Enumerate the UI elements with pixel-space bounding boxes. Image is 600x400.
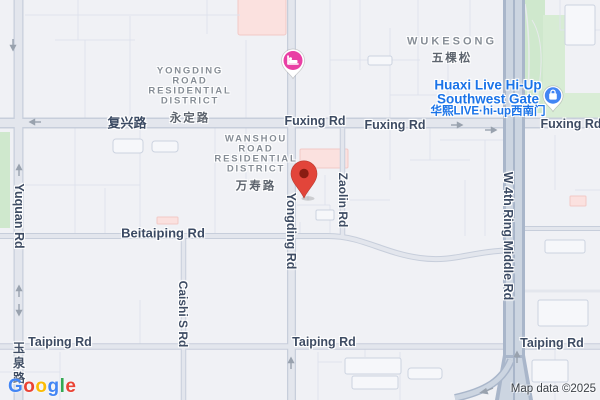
gate-pin[interactable] xyxy=(543,86,563,112)
pin-layer xyxy=(0,0,600,400)
hotel-pin[interactable] xyxy=(282,49,305,79)
map-canvas[interactable]: 复兴路 Fuxing Rd Fuxing Rd Fuxing Rd Beitai… xyxy=(0,0,600,400)
pin-inner-dot xyxy=(299,169,308,178)
destination-pin[interactable] xyxy=(291,161,317,201)
google-logo[interactable]: Google xyxy=(8,376,76,398)
map-attribution: Map data ©2025 xyxy=(511,383,596,395)
